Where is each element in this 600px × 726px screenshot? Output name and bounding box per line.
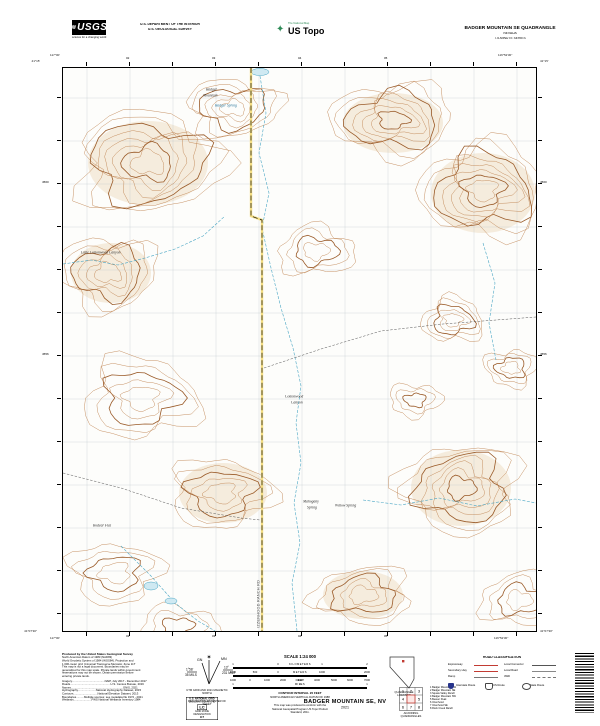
road-class-label: Secondary Hwy: [448, 669, 462, 672]
dept-header: U.S. DEPARTMENT OF THE INTERIOR U.S. GEO…: [105, 23, 235, 35]
tick-label-right: 4560: [540, 181, 547, 184]
scale-number: 2: [366, 663, 368, 666]
svg-text:13°: 13°: [224, 666, 230, 670]
scale-number: 0: [277, 663, 279, 666]
road-class-label: 4WD: [504, 675, 518, 678]
quad-title: BADGER MOUNTAIN SE QUADRANGLE: [438, 26, 582, 32]
tick-label-bottom: 04: [298, 635, 301, 638]
grid-tick-bottom: [172, 632, 173, 636]
road-class-sample: [532, 671, 556, 672]
grid-tick-left: [57, 269, 61, 270]
tick-label-top: 04: [298, 57, 301, 60]
scale-bar: [233, 687, 367, 689]
corner-top-left-lat: 41°15': [22, 60, 40, 63]
road-class-sample: [474, 671, 498, 672]
scale-bar: [233, 675, 367, 677]
svg-text:1°58´: 1°58´: [186, 668, 194, 672]
scale-unit: KILOMETERS: [289, 663, 311, 666]
road-class-legend: ExpresswaySecondary HwyRampLocal Connect…: [448, 663, 556, 691]
road-class-shield-label: Interstate Route: [456, 684, 475, 687]
ustopo-tagline: The National Map: [288, 22, 324, 25]
dept-line2: U.S. GEOLOGICAL SURVEY: [134, 28, 206, 32]
grid-tick-bottom: [258, 632, 259, 636]
interstate-shield-icon: [448, 683, 454, 689]
declination-diagram: ✶ GN MN 1°58´ 35 MILS 13° 231 MILS: [183, 653, 235, 689]
grid-tick-top: [172, 62, 173, 66]
grid-tick-right: [538, 527, 542, 528]
grid-tick-top: [258, 62, 259, 66]
road-class-label: Ramp: [448, 675, 462, 678]
map-labels-layer: BadgerMountainBadger SpringLittle Cotton…: [63, 68, 536, 631]
grid-tick-left: [57, 441, 61, 442]
scale-unit: MILES: [295, 683, 305, 686]
scale-block: SCALE 1:24 000: [233, 655, 367, 662]
adjoining-caption-text: ADJOINING QUADRANGLES: [398, 712, 425, 718]
grid-tick-left: [57, 398, 61, 399]
scale-number: 1000: [230, 679, 236, 682]
grid-tick-left: [57, 312, 61, 313]
road-class-shield-label: US Route: [493, 684, 505, 687]
grid-tick-top: [129, 62, 130, 66]
tick-label-left: 4560: [42, 181, 49, 184]
road-class-shield-row: US Route: [485, 683, 522, 691]
adjoining-caption: ADJOINING QUADRANGLES: [381, 712, 441, 726]
grid-tick-bottom: [473, 632, 474, 636]
road-class-shield-label: State Route: [530, 684, 544, 687]
scale-number: 4000: [314, 679, 320, 682]
scale-number: 1: [232, 683, 234, 686]
road-class-shield-row: Interstate Route: [448, 683, 485, 691]
corner-bottom-right-lon: 116°52'30": [494, 637, 508, 640]
corner-bottom-left-lon: 117°00': [50, 637, 60, 640]
svg-text:GN: GN: [197, 658, 203, 662]
road-class-title-wrap: ROAD CLASSIFICATION: [448, 656, 556, 663]
grid-tick-top: [516, 62, 517, 66]
grid-tick-top: [301, 62, 302, 66]
svg-text:35 MILS: 35 MILS: [185, 673, 197, 677]
grid-tick-left: [57, 226, 61, 227]
grid-tick-left: [57, 355, 61, 356]
grid-tick-right: [538, 312, 542, 313]
quad-series: 7.5-MINUTE SERIES: [461, 37, 560, 41]
scale-number: 0: [249, 679, 251, 682]
map-area: BadgerMountainBadger SpringLittle Cotton…: [62, 67, 537, 632]
usng-zone: 11T: [188, 716, 217, 719]
sheet-title: BADGER MOUNTAIN SE, NV: [265, 699, 425, 705]
grid-tick-right: [538, 269, 542, 270]
tick-label-bottom: 05: [384, 635, 387, 638]
tick-label-bottom: 02: [126, 635, 129, 638]
usgs-logo-text: USGS: [77, 22, 107, 33]
scale-number: 2000: [280, 679, 286, 682]
grid-tick-right: [538, 484, 542, 485]
usgs-logo: ≋ USGS: [72, 20, 106, 35]
road-class-shield-row: State Route: [522, 683, 559, 691]
adjoining-cell-number: 2: [410, 689, 413, 694]
scale-number: 0: [277, 671, 279, 674]
scale-number: 2000: [364, 671, 370, 674]
road-class-label: Expressway: [448, 663, 462, 666]
map-label: Cottonwood: [285, 395, 303, 399]
dept-line1: U.S. DEPARTMENT OF THE INTERIOR: [134, 23, 206, 27]
grid-tick-left: [57, 527, 61, 528]
quad-title-block: BADGER MOUNTAIN SE QUADRANGLE NEVADA 7.5…: [420, 26, 600, 44]
grid-tick-left: [57, 183, 61, 184]
tick-label-top: 03: [212, 57, 215, 60]
map-label: Spring: [307, 506, 317, 510]
corner-top-right-lon: 116°52'30": [498, 54, 512, 57]
map-label: Rodear Flat: [93, 524, 111, 528]
map-label: Mahogany: [303, 500, 319, 504]
corner-bottom-right-lat: 41°07'30": [540, 630, 553, 633]
grid-tick-right: [538, 570, 542, 571]
grid-tick-top: [387, 62, 388, 66]
map-label: IZZENHOOD RANCH RD: [257, 580, 261, 628]
road-class-label: Local Connector: [504, 663, 518, 666]
tick-label-top: 05: [384, 57, 387, 60]
grid-tick-bottom: [516, 632, 517, 636]
scale-number: 7000: [364, 679, 370, 682]
grid-tick-left: [57, 570, 61, 571]
grid-tick-right: [538, 226, 542, 227]
usng-box: U.S. NATIONAL GRID 100,000-M SQUARE ID L…: [186, 697, 228, 720]
tick-label-bottom: 03: [212, 635, 215, 638]
grid-tick-right: [538, 140, 542, 141]
usng-subtitle: 100,000-M SQUARE ID: [188, 701, 217, 704]
grid-tick-top: [86, 62, 87, 66]
grid-tick-right: [538, 613, 542, 614]
adjoining-cell-number: 3: [418, 689, 421, 694]
road-class-sample: [474, 665, 498, 666]
ustopo-pinwheel-icon: ✦: [276, 24, 284, 35]
tick-label-top: 02: [126, 57, 129, 60]
scale-number: 500: [253, 671, 258, 674]
grid-tick-right: [538, 97, 542, 98]
grid-tick-top: [215, 62, 216, 66]
corner-bottom-left-lat: 41°07'30": [16, 630, 37, 633]
ustopo-logo: ✦ The National Map US Topo: [276, 22, 336, 42]
scale-number: 1: [232, 663, 234, 666]
scale-number: 6000: [347, 679, 353, 682]
ustopo-brand: US Topo: [288, 26, 324, 36]
grid-tick-left: [57, 97, 61, 98]
map-label: Little Cottonwood Canyon: [81, 251, 120, 255]
map-label: Badger Spring: [215, 104, 237, 108]
true-north-star-icon: ✶: [206, 654, 211, 661]
scale-unit: METERS: [293, 671, 307, 674]
usgs-wave-icon: ≋: [71, 24, 77, 31]
map-label: Willow Spring: [335, 504, 356, 508]
grid-tick-right: [538, 398, 542, 399]
grid-tick-bottom: [344, 632, 345, 636]
grid-tick-top: [344, 62, 345, 66]
road-class-label: Local Road: [504, 669, 518, 672]
tick-label-right: 4556: [540, 353, 547, 356]
quad-state: NEVADA: [461, 32, 560, 36]
scale-number: 1000: [263, 679, 269, 682]
corner-top-left-lon: 117°00': [50, 54, 60, 57]
grid-tick-top: [430, 62, 431, 66]
adjoining-cell-number: 1: [402, 689, 405, 694]
grid-tick-right: [538, 441, 542, 442]
grid-tick-left: [57, 484, 61, 485]
map-label: Canyon: [291, 401, 303, 405]
corner-top-right-lat: 41°15': [540, 60, 548, 63]
road-class-sample: [532, 665, 556, 666]
map-label: Badger: [206, 88, 217, 92]
svg-text:MN: MN: [221, 657, 227, 661]
declination-caption-line1: UTM GRID AND 2021 MAGNETIC NORTH: [185, 689, 230, 695]
state-outline-map: [388, 655, 418, 691]
tick-label-left: 4556: [42, 353, 49, 356]
grid-tick-top: [473, 62, 474, 66]
scale-number: 1000: [230, 671, 236, 674]
scale-title: SCALE 1:24 000: [253, 655, 347, 660]
barcode: [575, 653, 594, 713]
grid-tick-bottom: [86, 632, 87, 636]
contour-interval: CONTOUR INTERVAL 20 FEET: [267, 692, 334, 695]
sheet-year: 2021: [285, 706, 405, 710]
quad-location-marker: [402, 660, 404, 662]
credit-line: entering private lands.: [62, 675, 180, 678]
us-route-shield-icon: [485, 683, 493, 690]
usgs-tagline: science for a changing world: [72, 36, 113, 39]
road-class-sample: [532, 677, 556, 678]
grid-tick-left: [57, 140, 61, 141]
road-class-title: ROAD CLASSIFICATION: [472, 656, 531, 660]
scale-number: 5000: [330, 679, 336, 682]
credits-lines: North American Datum of 1983 (NAD83)Worl…: [62, 657, 180, 679]
scale-unit: FEET: [296, 679, 305, 682]
sheet-title-block: BADGER MOUNTAIN SE, NV 2021: [245, 699, 445, 713]
map-label: Mountain: [203, 94, 217, 98]
scale-number: 1: [366, 683, 368, 686]
grid-tick-left: [57, 613, 61, 614]
scale-bars: 1012KILOMETERS1000500010002000METERS1000…: [233, 663, 367, 691]
grid-tick-bottom: [430, 632, 431, 636]
scale-number: 1: [322, 663, 324, 666]
road-class-sample: [474, 677, 498, 678]
scale-number: 1000: [319, 671, 325, 674]
scale-bar: [233, 667, 367, 669]
